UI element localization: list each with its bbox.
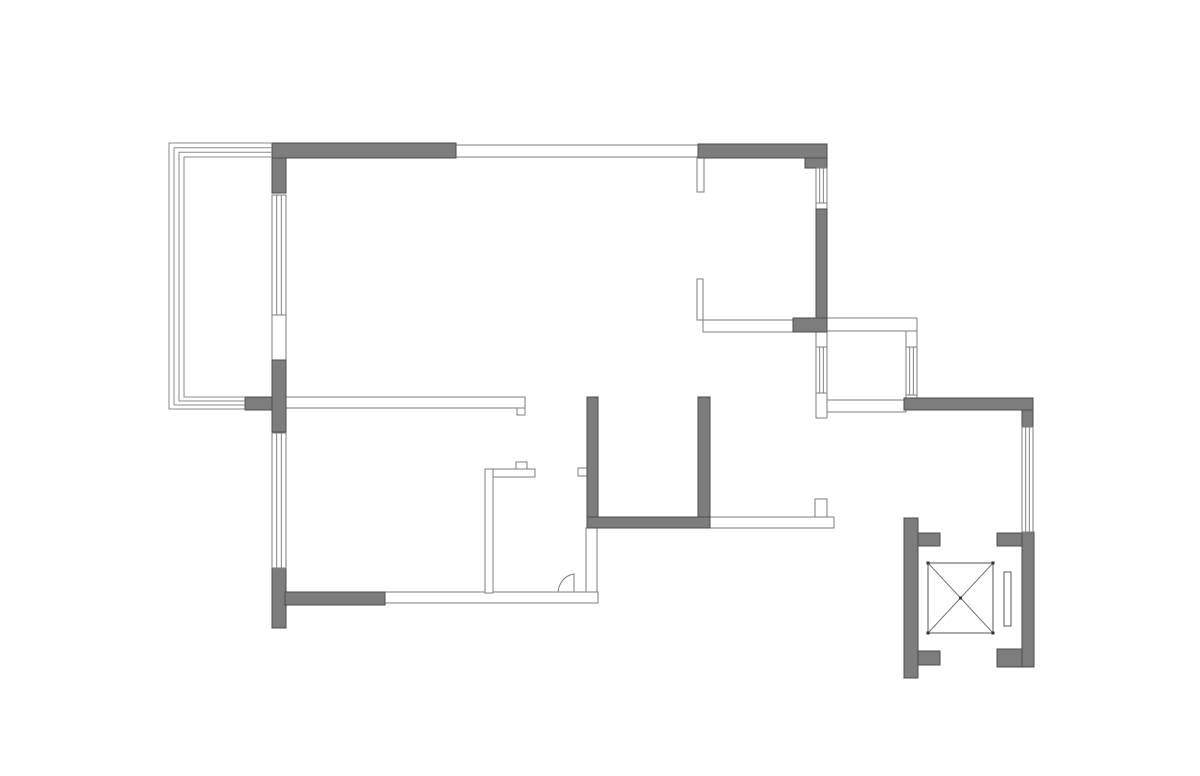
window-right-window-lower	[816, 347, 827, 393]
elevator-dot	[927, 562, 930, 565]
wall-outline-top-wall-middle	[456, 145, 698, 157]
solid-walls-layer	[245, 143, 1034, 678]
wall-outline-alcove-bottom-wall	[827, 400, 906, 412]
window-frame	[816, 347, 827, 393]
window-balcony-window-lower	[272, 433, 286, 568]
wall-outline-bathroom-wall-tab	[578, 468, 587, 476]
window-frame	[272, 433, 286, 568]
wall-outline-counter-vertical	[485, 469, 493, 593]
elevator-dot	[927, 632, 930, 635]
wall-solid-lobby-left-wall	[904, 518, 918, 678]
elevator-dot	[959, 597, 962, 600]
wall-outline-interior-wall-end-hook	[517, 408, 525, 415]
wall-outline-alcove-top-wall	[827, 318, 917, 331]
wall-solid-lobby-tab-top-left	[918, 533, 940, 546]
wall-outline-entry-door-stub	[815, 499, 827, 517]
wall-outline-right-wall-gap	[816, 203, 827, 209]
wall-outline-interior-wall-horizontal	[286, 397, 525, 408]
balcony-rail-line-3	[184, 157, 272, 397]
wall-solid-left-corner-block	[272, 158, 286, 193]
window-frame	[816, 168, 827, 203]
wall-solid-right-wall-upper	[816, 209, 827, 332]
balcony-railing	[169, 143, 272, 409]
window-right-window-upper	[816, 168, 827, 203]
wall-solid-lobby-right-wall-lower	[1022, 532, 1034, 667]
wall-solid-lobby-right-wall-upper	[1022, 410, 1033, 427]
elevator-shaft	[927, 562, 1012, 635]
wall-outline-balcony-door-opening	[272, 315, 286, 360]
wall-solid-left-wall-middle	[272, 360, 286, 432]
wall-outline-interior-stub-horizontal	[703, 320, 793, 332]
door-swing	[558, 574, 574, 592]
wall-solid-top-wall-left	[272, 143, 456, 158]
wall-solid-right-wall-step	[793, 318, 827, 332]
wall-solid-top-wall-right	[698, 144, 827, 158]
window-balcony-window-upper	[272, 195, 286, 315]
window-frame	[906, 347, 917, 395]
wall-outline-counter-horizontal	[493, 469, 535, 477]
window-frame	[272, 195, 286, 315]
window-lobby-window-right	[1022, 427, 1033, 532]
floor-plan-svg	[0, 0, 1200, 776]
door-swing-arc	[558, 574, 574, 592]
wall-solid-bottom-wall-gray	[285, 592, 385, 605]
wall-outline-interior-stub-vertical	[697, 279, 703, 320]
floor-plan-canvas	[0, 0, 1200, 776]
wall-solid-bathroom-wall-bottom	[587, 517, 710, 528]
wall-solid-lobby-top-wall	[904, 398, 1033, 410]
wall-outline-entry-wall-horizontal	[710, 517, 834, 528]
wall-outline-counter-tab	[516, 462, 527, 469]
balcony-rail-line-1	[174, 148, 272, 405]
wall-solid-lobby-tab-bottom-left	[918, 651, 940, 665]
window-alcove-window-right	[906, 347, 917, 395]
wall-outline-top-wall-stub	[697, 157, 704, 192]
wall-solid-bathroom-wall-left	[587, 397, 598, 528]
elevator-door-slab	[1004, 572, 1011, 626]
wall-solid-lobby-tab-top-right	[997, 533, 1022, 546]
wall-solid-top-right-corner-block	[805, 158, 827, 168]
wall-solid-lobby-tab-bottom-right	[997, 649, 1022, 667]
window-frame	[1022, 427, 1033, 532]
wall-outline-bathroom-wall-left-lower	[586, 528, 597, 593]
elevator-dot	[992, 632, 995, 635]
wall-solid-balcony-junction-stub	[245, 397, 272, 410]
elevator-dot	[992, 562, 995, 565]
balcony-rail-line-2	[179, 152, 272, 401]
wall-solid-left-wall-lower	[272, 568, 286, 628]
wall-outline-bottom-wall-thin	[385, 592, 598, 603]
wall-solid-bathroom-wall-right	[698, 397, 710, 518]
windows-layer	[272, 168, 1033, 568]
